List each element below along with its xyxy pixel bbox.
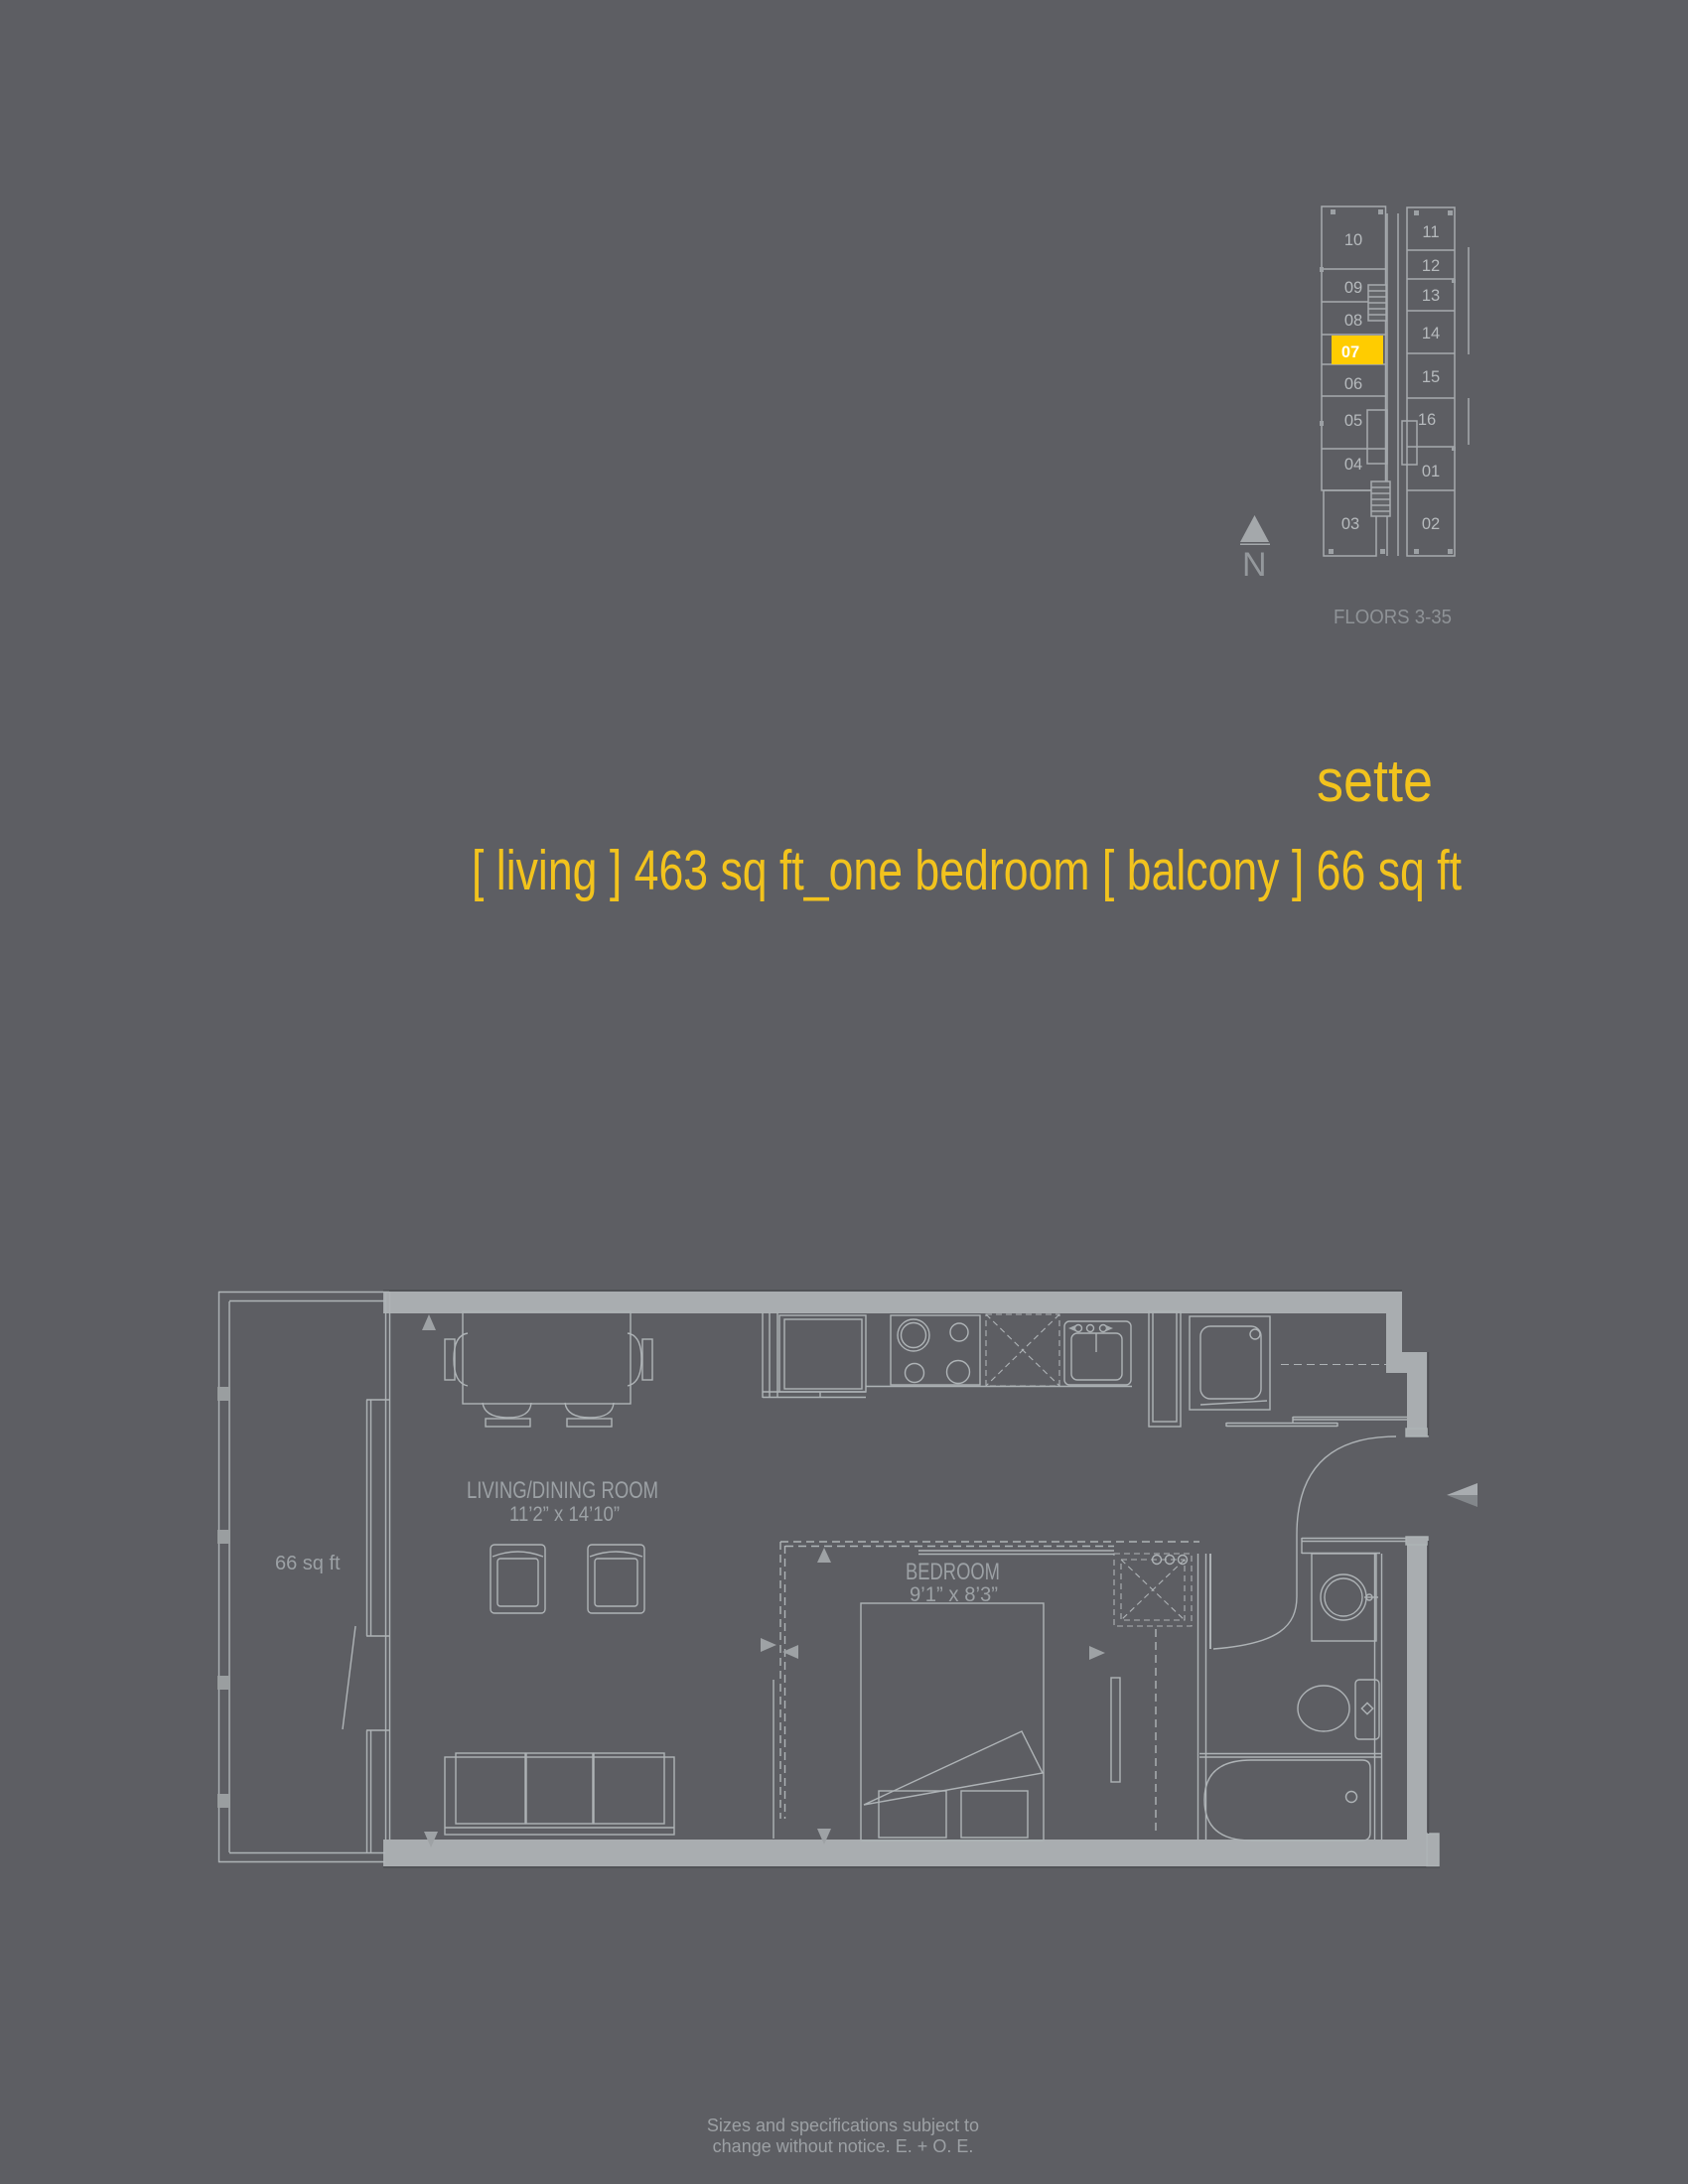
svg-text:06: 06 (1344, 375, 1362, 393)
svg-text:12: 12 (1422, 257, 1440, 275)
svg-text:14: 14 (1422, 325, 1440, 342)
svg-text:08: 08 (1344, 312, 1362, 330)
svg-text:13: 13 (1422, 287, 1440, 305)
svg-text:11’2” x 14’10”: 11’2” x 14’10” (509, 1503, 620, 1526)
svg-text:[ living ] 463 sq ft_one bedro: [ living ] 463 sq ft_one bedroom [ balco… (472, 839, 1462, 902)
svg-text:04: 04 (1344, 456, 1362, 474)
svg-text:07: 07 (1341, 343, 1359, 361)
svg-text:11: 11 (1422, 223, 1439, 241)
svg-text:N: N (1242, 546, 1267, 584)
svg-text:sette: sette (1317, 748, 1433, 814)
svg-text:LIVING/DINING ROOM: LIVING/DINING ROOM (467, 1477, 658, 1504)
svg-text:05: 05 (1344, 412, 1362, 430)
svg-text:FLOORS 3-35: FLOORS 3-35 (1334, 607, 1452, 628)
svg-text:Sizes and specifications subje: Sizes and specifications subject to (707, 2116, 979, 2135)
svg-text:BEDROOM: BEDROOM (906, 1559, 1000, 1585)
svg-text:66 sq ft: 66 sq ft (275, 1553, 341, 1574)
svg-text:15: 15 (1422, 368, 1440, 386)
svg-text:10: 10 (1344, 231, 1362, 249)
svg-text:01: 01 (1422, 463, 1440, 480)
svg-text:16: 16 (1418, 411, 1436, 429)
svg-text:02: 02 (1422, 515, 1440, 533)
svg-text:09: 09 (1344, 279, 1362, 297)
svg-text:change without notice. E. + O.: change without notice. E. + O. E. (713, 2136, 974, 2156)
svg-text:03: 03 (1341, 515, 1359, 533)
